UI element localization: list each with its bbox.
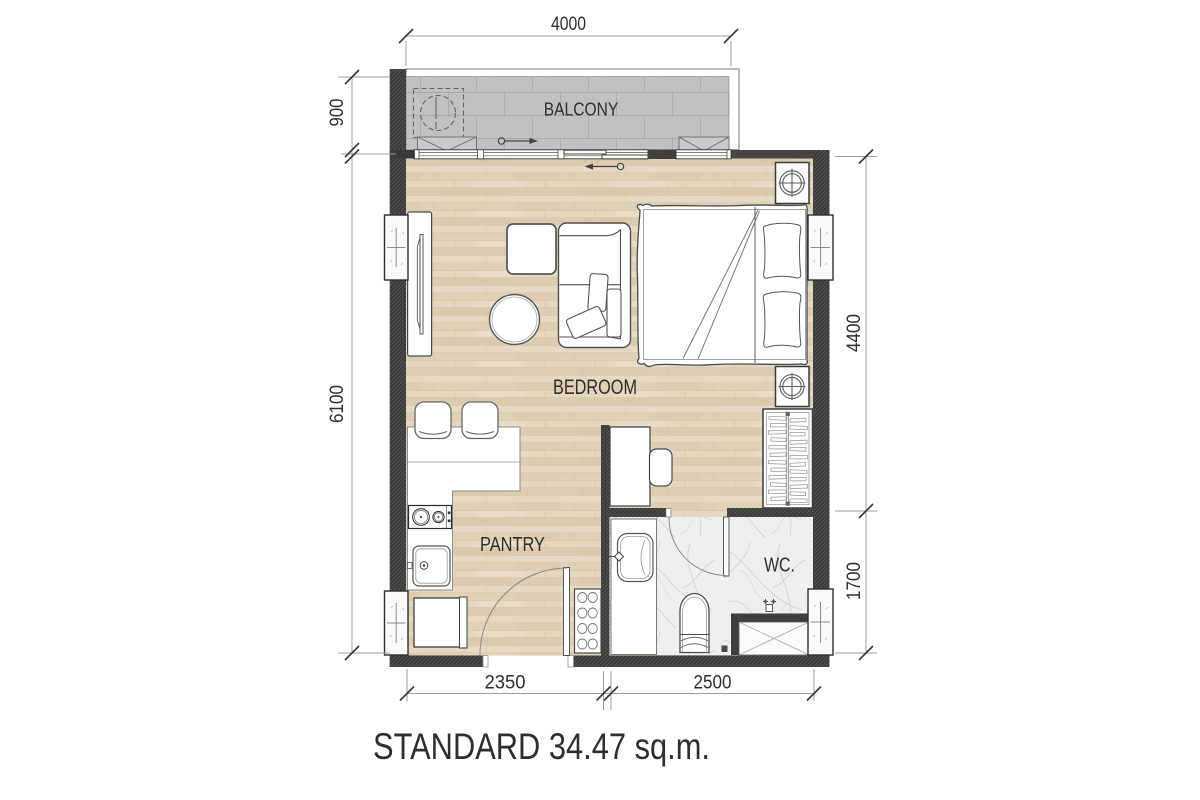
svg-text:1700: 1700 [844,562,865,600]
svg-text:2350: 2350 [485,673,526,694]
svg-text:PANTRY: PANTRY [480,534,545,556]
svg-text:2500: 2500 [694,673,732,694]
svg-text:WC.: WC. [764,555,795,577]
svg-text:900: 900 [327,99,348,127]
svg-text:BEDROOM: BEDROOM [553,376,637,399]
svg-text:BALCONY: BALCONY [544,100,619,120]
svg-text:STANDARD 34.47 sq.m.: STANDARD 34.47 sq.m. [373,726,710,767]
svg-text:4400: 4400 [844,314,865,352]
svg-text:4000: 4000 [551,14,586,35]
svg-text:6100: 6100 [327,385,348,423]
